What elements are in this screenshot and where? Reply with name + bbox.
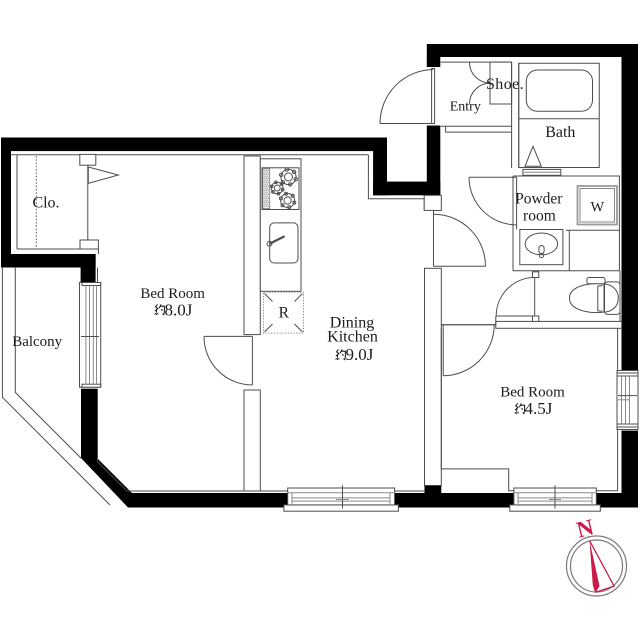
svg-text:Clo.: Clo. — [32, 194, 59, 211]
svg-text:4.5J: 4.5J — [525, 399, 553, 418]
svg-text:R: R — [279, 305, 290, 322]
svg-text:Bath: Bath — [545, 124, 575, 141]
svg-text:room: room — [523, 208, 556, 225]
svg-text:Balcony: Balcony — [12, 334, 62, 350]
svg-text:8.0J: 8.0J — [165, 300, 193, 319]
svg-text:Powder: Powder — [515, 191, 563, 208]
svg-text:Kitchen: Kitchen — [327, 328, 378, 345]
svg-text:Entry: Entry — [450, 99, 481, 114]
svg-text:Bed Room: Bed Room — [500, 384, 565, 400]
svg-text:9.0J: 9.0J — [346, 345, 374, 364]
svg-text:W: W — [590, 199, 604, 215]
